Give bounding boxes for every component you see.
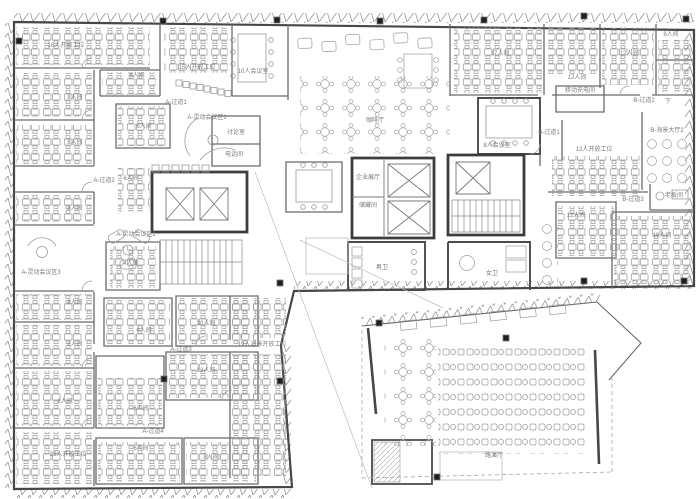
column-marker <box>277 378 283 384</box>
column-marker <box>581 278 587 284</box>
column-marker <box>481 17 487 23</box>
column-marker <box>274 17 280 23</box>
roadshow-hall <box>362 302 641 484</box>
column-marker <box>683 16 689 22</box>
column-marker <box>376 320 382 326</box>
column-marker <box>681 278 687 284</box>
column-marker <box>16 38 22 44</box>
column-marker <box>377 18 383 24</box>
floor-plan-canvas <box>0 0 700 499</box>
floor-plan-screenshot: 16人开放工位8人间8人间A-过道28人间A-灵动会议区38人间8人间8人间23… <box>0 0 700 499</box>
column-marker <box>434 474 440 480</box>
column-marker <box>160 18 166 24</box>
column-marker <box>277 280 283 286</box>
column-marker <box>161 376 167 382</box>
column-marker <box>503 335 509 341</box>
column-marker <box>581 13 587 19</box>
